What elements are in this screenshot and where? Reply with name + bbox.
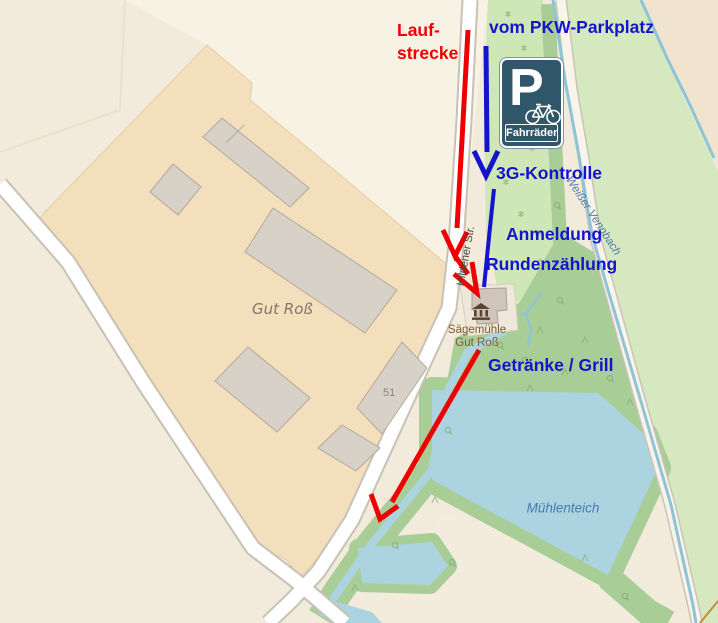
map-screenshot: Gut Roß 51 Hildener Str. Weißer Vennbach…	[0, 0, 718, 623]
fahrraeder-label: Fahrräder	[505, 124, 558, 142]
bicycle-parking-sign: P Fahrräder	[500, 58, 563, 148]
map-canvas	[0, 0, 718, 623]
bicycle-icon	[524, 100, 562, 126]
parking-arrow-line	[486, 46, 487, 152]
